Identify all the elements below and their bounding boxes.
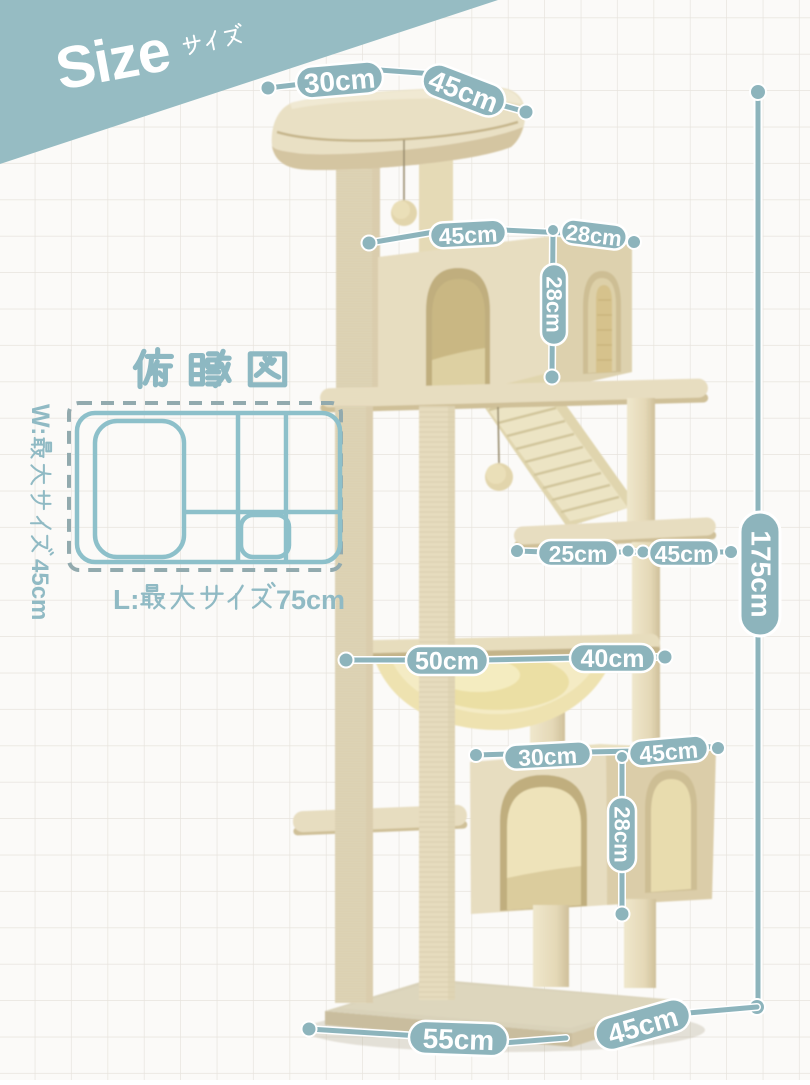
svg-text:L:: L: (113, 584, 139, 615)
svg-text:W:: W: (26, 404, 54, 435)
svg-text:45cm: 45cm (438, 220, 498, 249)
svg-text:30cm: 30cm (518, 742, 578, 771)
svg-text:50cm: 50cm (415, 648, 479, 676)
svg-text:28cm: 28cm (610, 806, 635, 862)
svg-text:30cm: 30cm (303, 62, 377, 99)
svg-text:25cm: 25cm (549, 541, 608, 567)
svg-text:55cm: 55cm (422, 1023, 495, 1056)
svg-text:75cm: 75cm (276, 585, 345, 615)
svg-text:28cm: 28cm (542, 276, 567, 332)
svg-text:45cm: 45cm (26, 559, 53, 620)
svg-text:45cm: 45cm (638, 736, 699, 767)
svg-text:40cm: 40cm (581, 645, 645, 673)
svg-text:175cm: 175cm (746, 530, 777, 617)
svg-text:45cm: 45cm (655, 541, 714, 567)
